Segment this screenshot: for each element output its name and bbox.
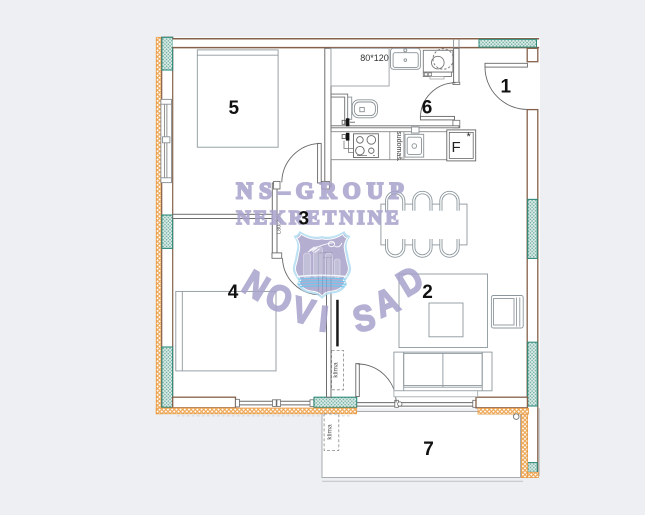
svg-text:2: 2 [422,282,433,303]
svg-text:3: 3 [299,209,310,230]
svg-text:klima: klima [333,362,340,378]
svg-text:sudomaš.: sudomaš. [395,131,402,161]
svg-text:5: 5 [229,98,240,119]
svg-text:7: 7 [423,439,434,460]
svg-text:6: 6 [422,98,433,119]
svg-text:1: 1 [501,76,512,97]
svg-text:80*120: 80*120 [360,53,389,63]
svg-text:4: 4 [228,282,239,303]
svg-text:NS–GROUP: NS–GROUP [236,178,410,203]
svg-text:F: F [452,139,461,156]
svg-text:klima: klima [326,424,333,440]
svg-text:NEKRETNINE: NEKRETNINE [236,207,401,229]
svg-text:*: * [467,131,472,143]
